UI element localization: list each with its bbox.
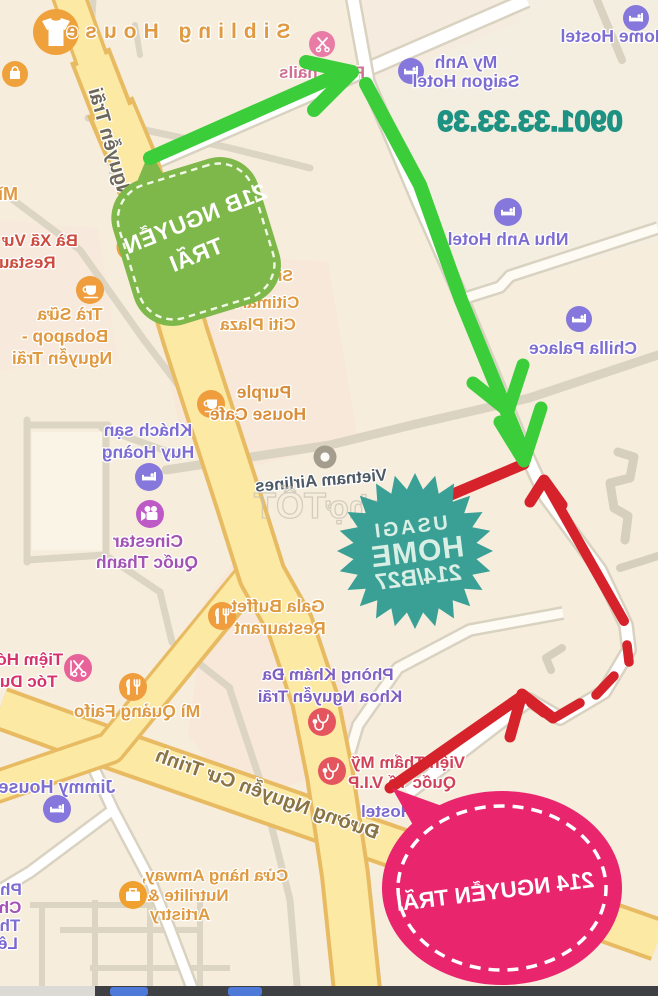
- svg-text:Home Hostel: Home Hostel: [561, 26, 658, 46]
- svg-text:Saigon Hotel: Saigon Hotel: [413, 71, 520, 91]
- svg-text:Khách sạn: Khách sạn: [104, 420, 193, 440]
- svg-text:Purple: Purple: [237, 382, 292, 402]
- svg-text:Huy Hoàng: Huy Hoàng: [102, 442, 194, 462]
- svg-text:Nguyễn Trãi: Nguyễn Trãi: [12, 347, 112, 368]
- svg-text:Quốc Thanh: Quốc Thanh: [96, 552, 198, 572]
- svg-text:Bobapop -: Bobapop -: [22, 326, 109, 346]
- svg-text:Nhu Anh Hotel: Nhu Anh Hotel: [448, 229, 569, 249]
- svg-text:Nutrilite &: Nutrilite &: [147, 886, 228, 905]
- svg-text:Lê: Lê: [0, 934, 18, 953]
- svg-text:Sibling House: Sibling House: [59, 20, 290, 43]
- svg-text:Tóc Duy: Tóc Duy: [0, 672, 58, 691]
- svg-text:Khoa Nguyễn Trãi: Khoa Nguyễn Trãi: [258, 687, 403, 706]
- svg-text:House Cafe: House Cafe: [210, 404, 307, 424]
- svg-text:Restaur: Restaur: [0, 253, 56, 272]
- svg-text:Chilla Palace: Chilla Palace: [529, 338, 637, 358]
- svg-text:Citi Plaza: Citi Plaza: [220, 315, 296, 334]
- svg-text:Restaurant: Restaurant: [234, 618, 326, 638]
- svg-text:Mì Quảng Faifo: Mì Quảng Faifo: [74, 701, 200, 721]
- svg-text:Jimmy House: Jimmy House: [0, 777, 116, 797]
- svg-text:Ch: Ch: [0, 898, 21, 917]
- svg-text:Artistry: Artistry: [149, 905, 210, 924]
- svg-text:My Anh: My Anh: [435, 52, 498, 72]
- svg-text:Ph: Ph: [0, 880, 22, 899]
- svg-text:Mì: Mì: [0, 184, 18, 204]
- svg-text:Bà Xã Vư: Bà Xã Vư: [2, 231, 78, 250]
- svg-text:Trà Sữa: Trà Sữa: [37, 304, 102, 324]
- svg-text:0901.33.33.39: 0901.33.33.39: [437, 106, 622, 138]
- svg-text:Gala Buffet: Gala Buffet: [231, 596, 325, 616]
- svg-text:Th: Th: [0, 916, 20, 935]
- svg-text:Phòng Khám Đa: Phòng Khám Đa: [262, 665, 394, 684]
- svg-text:Tiệm Hớt: Tiệm Hớt: [0, 650, 63, 669]
- svg-text:Cinestar: Cinestar: [113, 531, 183, 551]
- svg-text:Cửa hàng Amway,: Cửa hàng Amway,: [142, 866, 288, 885]
